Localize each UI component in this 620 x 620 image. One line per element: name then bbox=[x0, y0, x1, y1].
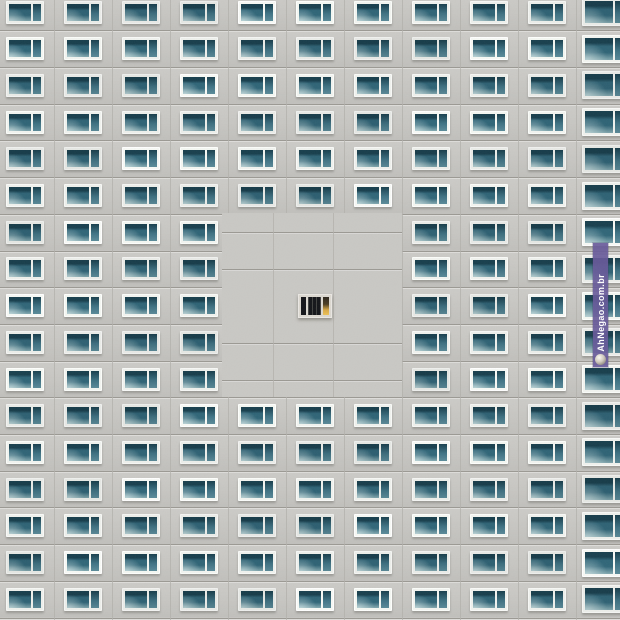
window-glass bbox=[183, 77, 215, 94]
window-glass bbox=[9, 297, 41, 314]
window bbox=[180, 147, 218, 170]
window-pane-right bbox=[33, 187, 41, 204]
window bbox=[180, 111, 218, 134]
window-glass bbox=[299, 150, 331, 167]
window-pane-right bbox=[323, 114, 331, 131]
window-glass bbox=[531, 517, 563, 534]
window-pane-left bbox=[241, 40, 263, 57]
window-glass bbox=[183, 517, 215, 534]
window-pane-left bbox=[415, 481, 437, 498]
window-glass bbox=[67, 187, 99, 204]
window-glass bbox=[299, 407, 331, 424]
window bbox=[470, 441, 508, 464]
window-pane-left bbox=[415, 517, 437, 534]
window bbox=[412, 147, 450, 170]
window-glass bbox=[9, 4, 41, 21]
window bbox=[412, 588, 450, 611]
window bbox=[122, 551, 160, 574]
window-pane-left bbox=[415, 407, 437, 424]
window-glass bbox=[585, 441, 620, 463]
window bbox=[470, 551, 508, 574]
window-pane-right bbox=[91, 407, 99, 424]
window-pane-left bbox=[125, 444, 147, 461]
window-pane-left bbox=[67, 407, 89, 424]
window bbox=[122, 74, 160, 97]
window-pane-left bbox=[183, 4, 205, 21]
window-pane-left bbox=[67, 77, 89, 94]
window-pane-left bbox=[241, 4, 263, 21]
window-pane-left bbox=[183, 40, 205, 57]
window-pane-right bbox=[207, 224, 215, 241]
window-glass bbox=[125, 114, 157, 131]
window-pane-right bbox=[615, 515, 620, 537]
window-glass bbox=[9, 371, 41, 388]
window-pane-right bbox=[615, 552, 620, 574]
window bbox=[412, 368, 450, 391]
window-pane-right bbox=[439, 224, 447, 241]
window-pane-right bbox=[149, 4, 157, 21]
window-pane-right bbox=[207, 4, 215, 21]
window bbox=[122, 331, 160, 354]
window-glass bbox=[473, 591, 505, 608]
window bbox=[582, 438, 620, 466]
window-glass bbox=[415, 334, 447, 351]
window-pane-right bbox=[323, 554, 331, 571]
window bbox=[412, 478, 450, 501]
window-pane-left bbox=[67, 591, 89, 608]
window bbox=[582, 0, 620, 26]
window-pane-right bbox=[555, 591, 563, 608]
window bbox=[354, 184, 392, 207]
window-pane-left bbox=[183, 334, 205, 351]
window-pane-right bbox=[265, 4, 273, 21]
window-pane-left bbox=[473, 150, 495, 167]
window bbox=[470, 184, 508, 207]
window bbox=[296, 588, 334, 611]
window-pane-right bbox=[91, 591, 99, 608]
window-pane-left bbox=[473, 407, 495, 424]
window-pane-right bbox=[207, 150, 215, 167]
window-pane-right bbox=[439, 4, 447, 21]
window-pane-left bbox=[299, 40, 321, 57]
window-pane-left bbox=[415, 554, 437, 571]
window-pane-left bbox=[415, 224, 437, 241]
window-pane-left bbox=[125, 407, 147, 424]
window bbox=[296, 478, 334, 501]
window-glass bbox=[585, 515, 620, 537]
window bbox=[238, 514, 276, 537]
window-glass bbox=[67, 517, 99, 534]
window-pane-right bbox=[33, 371, 41, 388]
window bbox=[582, 71, 620, 99]
window-pane-left bbox=[125, 187, 147, 204]
window-pane-right bbox=[91, 40, 99, 57]
window-pane-left bbox=[531, 407, 553, 424]
window-glass bbox=[125, 407, 157, 424]
window-pane-right bbox=[615, 74, 620, 96]
window-pane-right bbox=[265, 150, 273, 167]
window-pane-left bbox=[473, 4, 495, 21]
window-glass bbox=[415, 297, 447, 314]
window-pane-left bbox=[531, 150, 553, 167]
window-pane-left bbox=[183, 260, 205, 277]
window-glass bbox=[415, 40, 447, 57]
window bbox=[296, 441, 334, 464]
window-glass bbox=[299, 444, 331, 461]
window-pane-left bbox=[9, 371, 31, 388]
window-glass bbox=[241, 40, 273, 57]
panel-joint-line bbox=[54, 0, 55, 620]
window-pane-right bbox=[207, 407, 215, 424]
window-pane-right bbox=[439, 591, 447, 608]
window-pane-left bbox=[9, 297, 31, 314]
window-pane-left bbox=[9, 224, 31, 241]
window bbox=[528, 368, 566, 391]
window-glass bbox=[125, 334, 157, 351]
window bbox=[6, 257, 44, 280]
window bbox=[412, 331, 450, 354]
window-pane-right bbox=[207, 260, 215, 277]
window-pane-left bbox=[415, 444, 437, 461]
window-pane-right bbox=[265, 444, 273, 461]
window-glass bbox=[183, 444, 215, 461]
window-pane-right bbox=[91, 517, 99, 534]
window-glass bbox=[9, 260, 41, 277]
window bbox=[354, 111, 392, 134]
window-pane-left bbox=[299, 4, 321, 21]
window-pane-left bbox=[357, 407, 379, 424]
window bbox=[64, 221, 102, 244]
window bbox=[64, 37, 102, 60]
window bbox=[470, 74, 508, 97]
window bbox=[354, 37, 392, 60]
window-pane-right bbox=[555, 334, 563, 351]
window-pane-left bbox=[531, 4, 553, 21]
window-glass bbox=[9, 334, 41, 351]
window-glass bbox=[241, 407, 273, 424]
window-pane-right bbox=[149, 260, 157, 277]
window-pane-right bbox=[91, 334, 99, 351]
window bbox=[180, 368, 218, 391]
window-glass bbox=[473, 77, 505, 94]
window-glass bbox=[125, 591, 157, 608]
window bbox=[412, 111, 450, 134]
building-facade-photo: AhNegao.com.br bbox=[0, 0, 620, 620]
window-glass bbox=[299, 481, 331, 498]
window-glass bbox=[357, 444, 389, 461]
window-pane-right bbox=[555, 224, 563, 241]
window-glass bbox=[585, 1, 620, 23]
window-pane-right bbox=[615, 258, 620, 280]
window bbox=[6, 37, 44, 60]
window bbox=[238, 404, 276, 427]
window bbox=[122, 37, 160, 60]
window-pane-left bbox=[585, 368, 613, 390]
window-pane-right bbox=[615, 148, 620, 170]
window-pane-left bbox=[9, 187, 31, 204]
window-pane-left bbox=[585, 478, 613, 500]
window bbox=[6, 111, 44, 134]
window bbox=[122, 111, 160, 134]
window bbox=[354, 147, 392, 170]
window bbox=[6, 294, 44, 317]
window bbox=[528, 221, 566, 244]
window bbox=[238, 441, 276, 464]
window-glass bbox=[473, 114, 505, 131]
window-pane-left bbox=[585, 185, 613, 207]
window bbox=[180, 37, 218, 60]
window bbox=[470, 478, 508, 501]
window-pane-left bbox=[9, 260, 31, 277]
window-glass bbox=[125, 297, 157, 314]
window-pane-right bbox=[323, 591, 331, 608]
window bbox=[64, 257, 102, 280]
window bbox=[64, 478, 102, 501]
window-pane-left bbox=[357, 591, 379, 608]
window bbox=[470, 404, 508, 427]
window-glass bbox=[67, 407, 99, 424]
window-pane-left bbox=[125, 77, 147, 94]
window-glass bbox=[415, 371, 447, 388]
window-pane-left bbox=[299, 187, 321, 204]
window bbox=[412, 184, 450, 207]
window bbox=[412, 514, 450, 537]
window-glass bbox=[357, 114, 389, 131]
window-pane-right bbox=[33, 554, 41, 571]
window-glass bbox=[9, 114, 41, 131]
window bbox=[64, 74, 102, 97]
window bbox=[238, 111, 276, 134]
window-pane-left bbox=[473, 481, 495, 498]
window-pane-right bbox=[265, 77, 273, 94]
window-pane-right bbox=[555, 114, 563, 131]
window-pane-right bbox=[149, 224, 157, 241]
window-pane-right bbox=[265, 407, 273, 424]
floor-joint-line bbox=[0, 434, 620, 435]
window bbox=[412, 221, 450, 244]
window-glass bbox=[357, 481, 389, 498]
window-pane-right bbox=[381, 591, 389, 608]
window-pane-left bbox=[125, 260, 147, 277]
window-glass bbox=[357, 554, 389, 571]
window bbox=[354, 404, 392, 427]
window-pane-left bbox=[183, 591, 205, 608]
window-pane-right bbox=[555, 554, 563, 571]
window-pane-left bbox=[415, 187, 437, 204]
window-glass bbox=[585, 552, 620, 574]
window bbox=[180, 331, 218, 354]
window-pane-left bbox=[125, 297, 147, 314]
window-glass bbox=[299, 4, 331, 21]
window-glass bbox=[357, 517, 389, 534]
window-pane-left bbox=[299, 554, 321, 571]
window bbox=[64, 368, 102, 391]
window-glass bbox=[183, 4, 215, 21]
window bbox=[64, 331, 102, 354]
window-pane-right bbox=[439, 150, 447, 167]
window bbox=[122, 404, 160, 427]
window-pane-right bbox=[91, 444, 99, 461]
window-glass bbox=[241, 481, 273, 498]
window-pane-left bbox=[67, 114, 89, 131]
window-pane-left bbox=[357, 554, 379, 571]
window-pane-left bbox=[531, 481, 553, 498]
window-pane-left bbox=[357, 187, 379, 204]
window-glass bbox=[125, 40, 157, 57]
watermark-text: AhNegao.com.br bbox=[596, 274, 606, 352]
window-pane-right bbox=[265, 114, 273, 131]
window-pane-left bbox=[125, 371, 147, 388]
window bbox=[296, 551, 334, 574]
window bbox=[470, 37, 508, 60]
floor-joint-line bbox=[222, 232, 402, 233]
window-pane-right bbox=[265, 554, 273, 571]
window-pane-right bbox=[323, 407, 331, 424]
window bbox=[6, 74, 44, 97]
window-pane-left bbox=[125, 554, 147, 571]
window-pane-right bbox=[381, 4, 389, 21]
mascot-face-icon bbox=[595, 354, 606, 365]
window-pane-right bbox=[555, 407, 563, 424]
window-pane-left bbox=[9, 334, 31, 351]
window bbox=[64, 294, 102, 317]
window-pane-right bbox=[497, 407, 505, 424]
window-glass bbox=[125, 517, 157, 534]
window-pane-left bbox=[585, 588, 613, 610]
window-glass bbox=[9, 591, 41, 608]
window-pane-right bbox=[265, 481, 273, 498]
window bbox=[180, 184, 218, 207]
window-pane-right bbox=[33, 591, 41, 608]
window-glass bbox=[299, 187, 331, 204]
window-glass bbox=[415, 114, 447, 131]
window-glass bbox=[67, 77, 99, 94]
window-pane-left bbox=[67, 260, 89, 277]
window bbox=[296, 514, 334, 537]
window bbox=[6, 478, 44, 501]
window-pane-right bbox=[615, 1, 620, 23]
panel-joint-line bbox=[112, 0, 113, 620]
window-pane-left bbox=[415, 114, 437, 131]
window-pane-left bbox=[183, 481, 205, 498]
window-glass bbox=[9, 187, 41, 204]
window bbox=[528, 74, 566, 97]
window-glass bbox=[183, 591, 215, 608]
window-glass bbox=[183, 260, 215, 277]
window-glass bbox=[9, 77, 41, 94]
window-pane-left bbox=[357, 40, 379, 57]
window-pane-right bbox=[381, 40, 389, 57]
window bbox=[582, 402, 620, 430]
window-pane-left bbox=[473, 591, 495, 608]
window-glass bbox=[125, 77, 157, 94]
window bbox=[122, 147, 160, 170]
window-glass bbox=[473, 150, 505, 167]
window-glass bbox=[125, 371, 157, 388]
window bbox=[64, 147, 102, 170]
window-glass bbox=[357, 407, 389, 424]
window-glass bbox=[585, 148, 620, 170]
window-pane-left bbox=[415, 77, 437, 94]
window-glass bbox=[473, 187, 505, 204]
window-pane-right bbox=[265, 40, 273, 57]
window bbox=[470, 331, 508, 354]
panel-joint-line bbox=[402, 0, 403, 620]
window-pane-right bbox=[91, 554, 99, 571]
window-pane-left bbox=[67, 371, 89, 388]
window bbox=[238, 588, 276, 611]
window bbox=[412, 551, 450, 574]
window-glass bbox=[299, 554, 331, 571]
window-pane-right bbox=[33, 407, 41, 424]
window-glass bbox=[473, 334, 505, 351]
window-pane-right bbox=[207, 114, 215, 131]
window-pane-left bbox=[473, 260, 495, 277]
window-glass bbox=[357, 187, 389, 204]
window-pane-right bbox=[381, 150, 389, 167]
window-pane-right bbox=[439, 334, 447, 351]
window-pane-left bbox=[67, 481, 89, 498]
window-glass bbox=[357, 150, 389, 167]
window-pane-left bbox=[585, 552, 613, 574]
window-pane-left bbox=[241, 591, 263, 608]
floor-joint-line bbox=[0, 140, 620, 141]
window bbox=[180, 294, 218, 317]
floor-joint-line bbox=[0, 177, 620, 178]
window bbox=[582, 365, 620, 393]
window-pane-right bbox=[497, 481, 505, 498]
window bbox=[64, 441, 102, 464]
window-pane-left bbox=[531, 260, 553, 277]
window-glass bbox=[473, 444, 505, 461]
window-glass bbox=[531, 481, 563, 498]
window-pane-left bbox=[585, 38, 613, 60]
window-glass bbox=[183, 407, 215, 424]
window-pane-right bbox=[439, 187, 447, 204]
window-pane-left bbox=[473, 517, 495, 534]
window-pane-right bbox=[439, 371, 447, 388]
window-glass bbox=[9, 517, 41, 534]
window bbox=[528, 331, 566, 354]
window-pane-left bbox=[357, 481, 379, 498]
window-pane-left bbox=[241, 407, 263, 424]
window-pane-left bbox=[415, 150, 437, 167]
window-glass bbox=[415, 224, 447, 241]
window-glass bbox=[241, 444, 273, 461]
window bbox=[64, 588, 102, 611]
window-pane-right bbox=[615, 111, 620, 133]
window-pane-left bbox=[357, 4, 379, 21]
window bbox=[528, 147, 566, 170]
window-pane-left bbox=[125, 40, 147, 57]
window-glass bbox=[415, 4, 447, 21]
window-glass bbox=[415, 77, 447, 94]
window-pane-left bbox=[299, 150, 321, 167]
window bbox=[412, 37, 450, 60]
window-pane-right bbox=[33, 224, 41, 241]
window-pane-left bbox=[241, 481, 263, 498]
window bbox=[6, 588, 44, 611]
window-glass bbox=[67, 40, 99, 57]
window-pane-left bbox=[183, 297, 205, 314]
window-pane-right bbox=[149, 554, 157, 571]
window-pane-right bbox=[33, 150, 41, 167]
window-glass bbox=[299, 114, 331, 131]
window-pane-right bbox=[381, 114, 389, 131]
window-pane-right bbox=[615, 185, 620, 207]
window-pane-right bbox=[555, 4, 563, 21]
window bbox=[582, 145, 620, 173]
